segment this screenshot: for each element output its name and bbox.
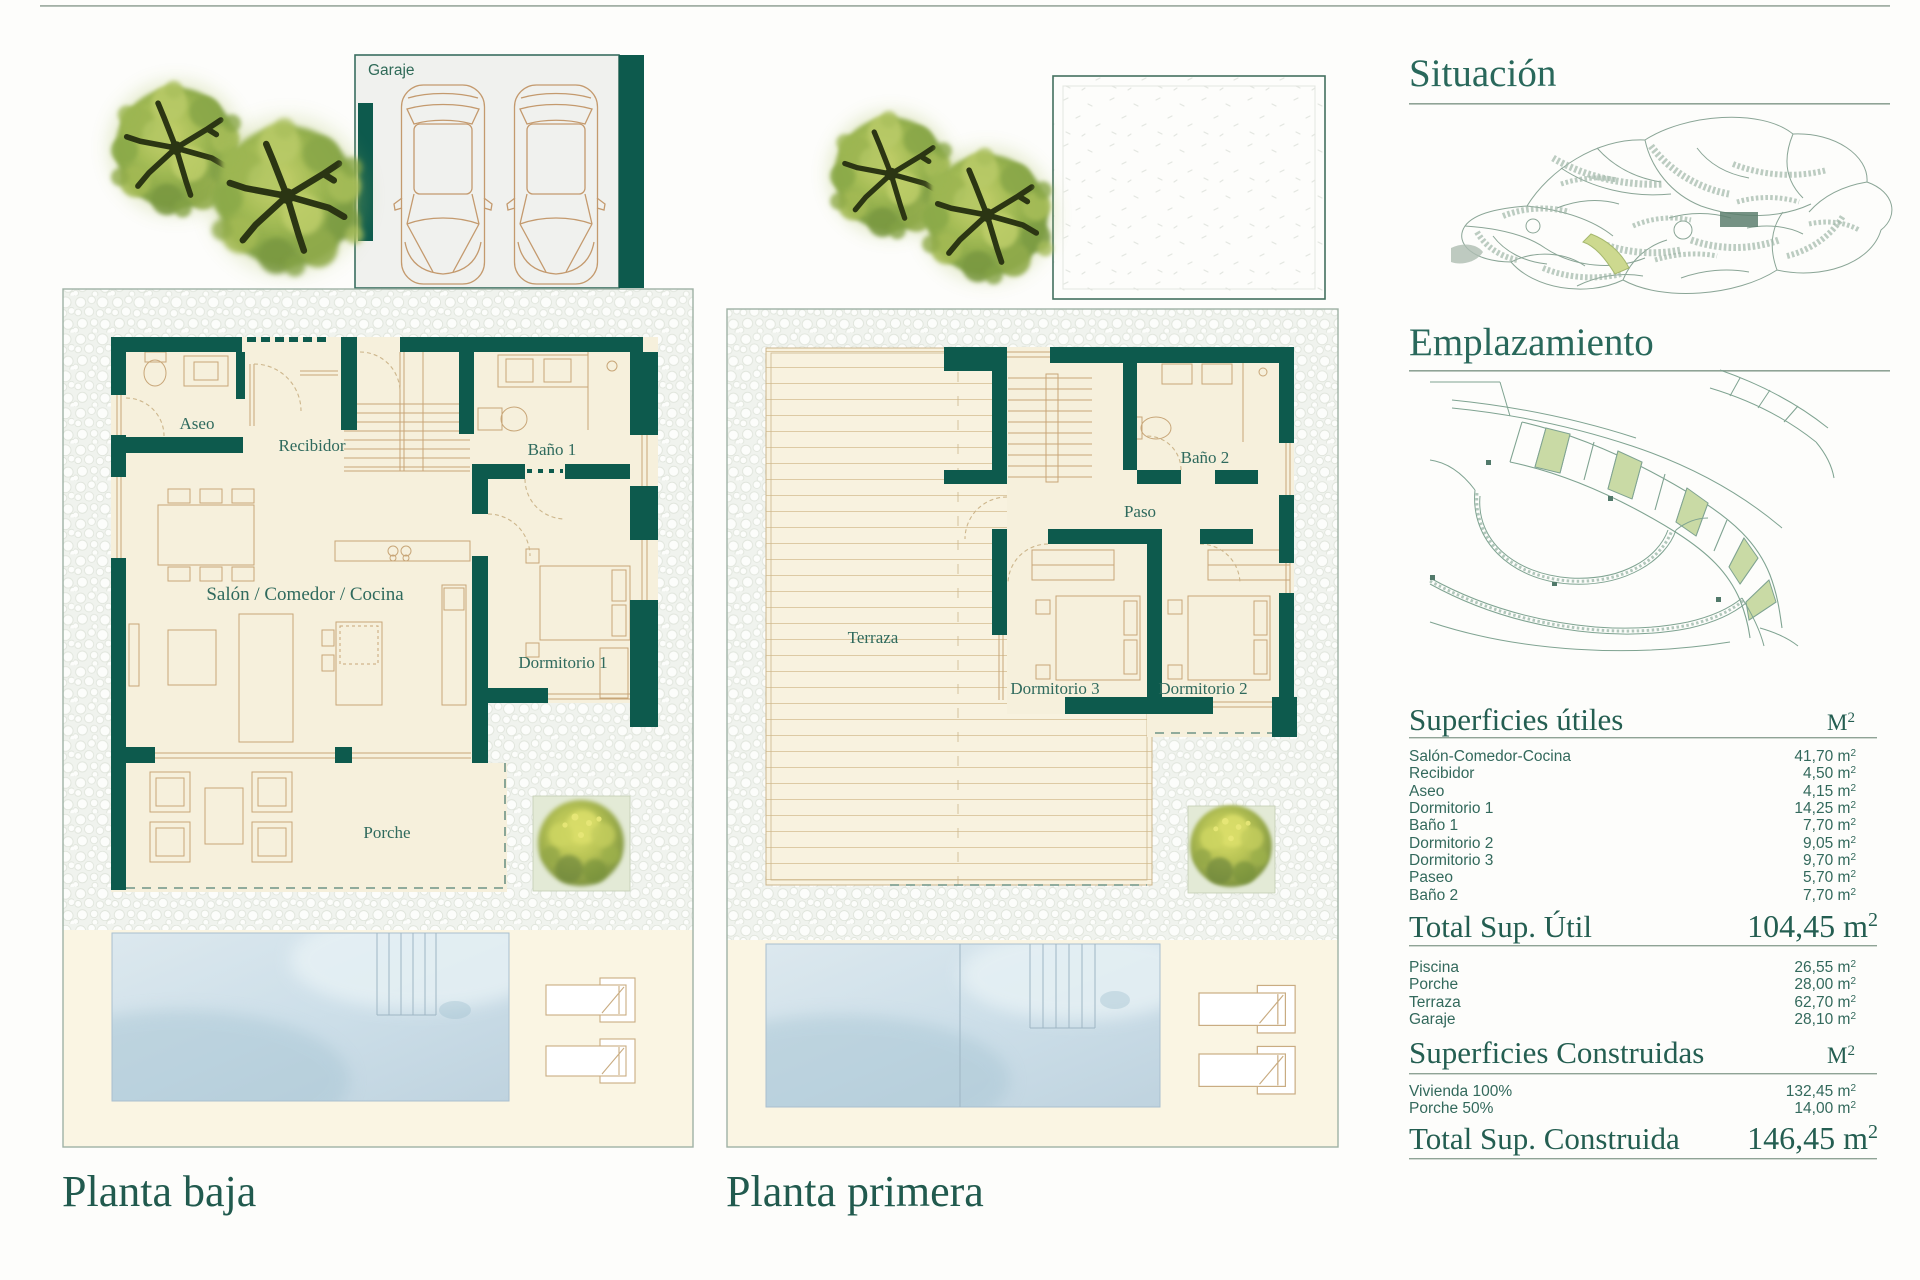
svg-text:Dormitorio 1: Dormitorio 1 [1409, 800, 1493, 817]
svg-text:62,70 m2: 62,70 m2 [1794, 994, 1856, 1011]
svg-text:Total Sup. Útil: Total Sup. Útil [1409, 909, 1592, 944]
svg-text:Salón / Comedor / Cocina: Salón / Comedor / Cocina [206, 584, 404, 605]
svg-text:Dormitorio 1: Dormitorio 1 [518, 653, 607, 672]
svg-text:9,05 m2: 9,05 m2 [1803, 835, 1856, 852]
svg-text:Porche 50%: Porche 50% [1409, 1100, 1494, 1117]
svg-text:Terraza: Terraza [848, 628, 899, 647]
svg-text:Emplazamiento: Emplazamiento [1409, 321, 1654, 364]
svg-text:Salón-Comedor-Cocina: Salón-Comedor-Cocina [1409, 748, 1571, 765]
svg-text:Baño 1: Baño 1 [528, 440, 577, 459]
svg-text:Situación: Situación [1409, 52, 1556, 95]
svg-text:Garaje: Garaje [368, 62, 415, 79]
svg-text:14,00 m2: 14,00 m2 [1794, 1100, 1856, 1117]
svg-text:Vivienda 100%: Vivienda 100% [1409, 1083, 1512, 1100]
svg-text:Porche: Porche [363, 823, 410, 842]
svg-text:Baño 1: Baño 1 [1409, 817, 1458, 834]
svg-text:5,70 m2: 5,70 m2 [1803, 869, 1856, 886]
svg-text:9,70 m2: 9,70 m2 [1803, 852, 1856, 869]
svg-text:Superficies útiles: Superficies útiles [1409, 702, 1623, 737]
svg-text:28,00 m2: 28,00 m2 [1794, 976, 1856, 993]
svg-text:7,70 m2: 7,70 m2 [1803, 887, 1856, 904]
svg-text:Aseo: Aseo [180, 414, 215, 433]
svg-text:4,50 m2: 4,50 m2 [1803, 765, 1856, 782]
svg-text:Piscina: Piscina [1409, 959, 1459, 976]
svg-text:Baño 2: Baño 2 [1181, 448, 1230, 467]
svg-text:Baño 2: Baño 2 [1409, 887, 1458, 904]
svg-text:Paso: Paso [1124, 502, 1156, 521]
svg-text:Recibidor: Recibidor [1409, 765, 1474, 782]
svg-text:Porche: Porche [1409, 976, 1458, 993]
svg-text:Superficies Construidas: Superficies Construidas [1409, 1035, 1704, 1070]
svg-text:Terraza: Terraza [1409, 994, 1461, 1011]
svg-text:Paseo: Paseo [1409, 869, 1453, 886]
svg-text:Recibidor: Recibidor [278, 436, 345, 455]
svg-text:41,70 m2: 41,70 m2 [1794, 748, 1856, 765]
svg-text:Planta baja: Planta baja [62, 1167, 256, 1216]
svg-text:Total Sup. Construida: Total Sup. Construida [1409, 1121, 1680, 1156]
svg-text:104,45 m2: 104,45 m2 [1747, 908, 1878, 944]
svg-text:28,10 m2: 28,10 m2 [1794, 1011, 1856, 1028]
svg-text:Dormitorio 2: Dormitorio 2 [1409, 835, 1493, 852]
svg-text:14,25 m2: 14,25 m2 [1794, 800, 1856, 817]
svg-text:7,70 m2: 7,70 m2 [1803, 817, 1856, 834]
svg-text:26,55 m2: 26,55 m2 [1794, 959, 1856, 976]
svg-text:M2: M2 [1827, 710, 1855, 735]
svg-text:Garaje: Garaje [1409, 1011, 1456, 1028]
svg-text:Dormitorio 2: Dormitorio 2 [1158, 679, 1247, 698]
svg-text:M2: M2 [1827, 1043, 1855, 1068]
svg-text:146,45 m2: 146,45 m2 [1747, 1120, 1878, 1156]
svg-text:Planta primera: Planta primera [726, 1167, 984, 1216]
svg-text:Dormitorio 3: Dormitorio 3 [1409, 852, 1493, 869]
svg-text:132,45 m2: 132,45 m2 [1786, 1083, 1857, 1100]
svg-text:4,15 m2: 4,15 m2 [1803, 783, 1856, 800]
svg-text:Aseo: Aseo [1409, 783, 1444, 800]
svg-text:Dormitorio 3: Dormitorio 3 [1010, 679, 1099, 698]
